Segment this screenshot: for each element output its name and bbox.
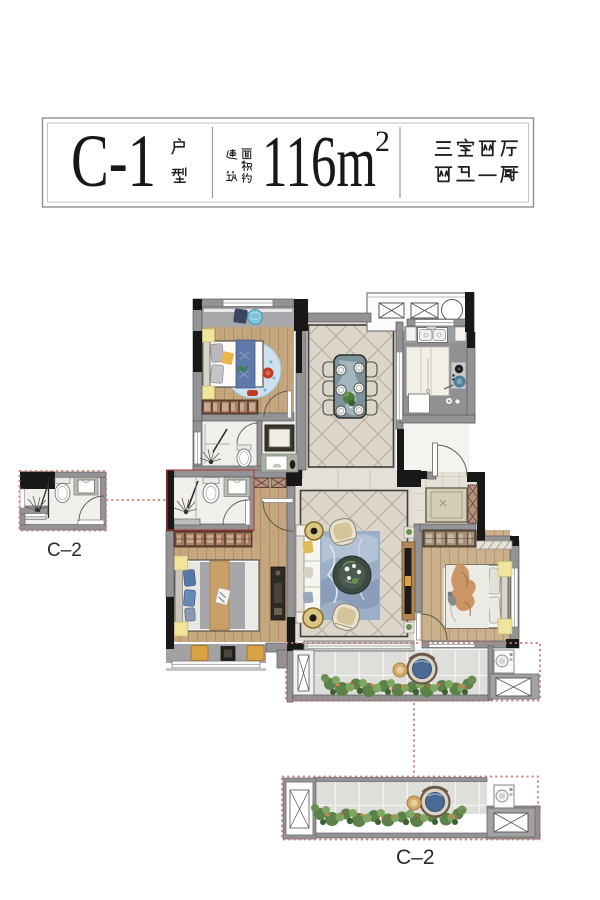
svg-text:C–2: C–2 <box>47 540 82 561</box>
svg-text:116m: 116m <box>262 121 376 202</box>
svg-text:C–2: C–2 <box>396 846 435 869</box>
svg-text:C-1: C-1 <box>71 120 156 203</box>
svg-text:2: 2 <box>375 125 390 158</box>
